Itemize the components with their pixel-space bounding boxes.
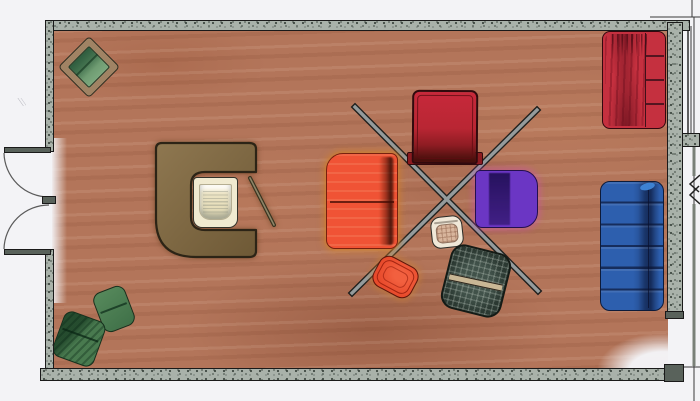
red-sofa: [602, 31, 666, 129]
desk-chair: [193, 177, 238, 228]
purple-loveseat: [475, 170, 538, 228]
furniture-layer: [0, 0, 700, 401]
wall-bottom: [40, 368, 670, 381]
red-sofa-back-cushions: [645, 33, 664, 127]
door-jamb-lower: [4, 249, 51, 255]
right-wall-end-cap: [665, 311, 684, 319]
wall-left-lower: [45, 249, 54, 370]
wall-top: [47, 20, 690, 31]
wall-left-upper: [45, 20, 54, 152]
wall-right: [667, 22, 683, 318]
red-rug: [412, 90, 479, 164]
bottom-wall-end-cap: [664, 364, 684, 382]
wall-spur-right-margin: [682, 133, 700, 147]
desk-stick-highlight: [250, 178, 274, 225]
orange-sofa: [326, 153, 398, 249]
door-jamb-upper: [4, 147, 51, 153]
door-center-post: [42, 196, 56, 204]
blue-sofa: [600, 181, 664, 311]
floor-plan-scan: [0, 0, 700, 401]
